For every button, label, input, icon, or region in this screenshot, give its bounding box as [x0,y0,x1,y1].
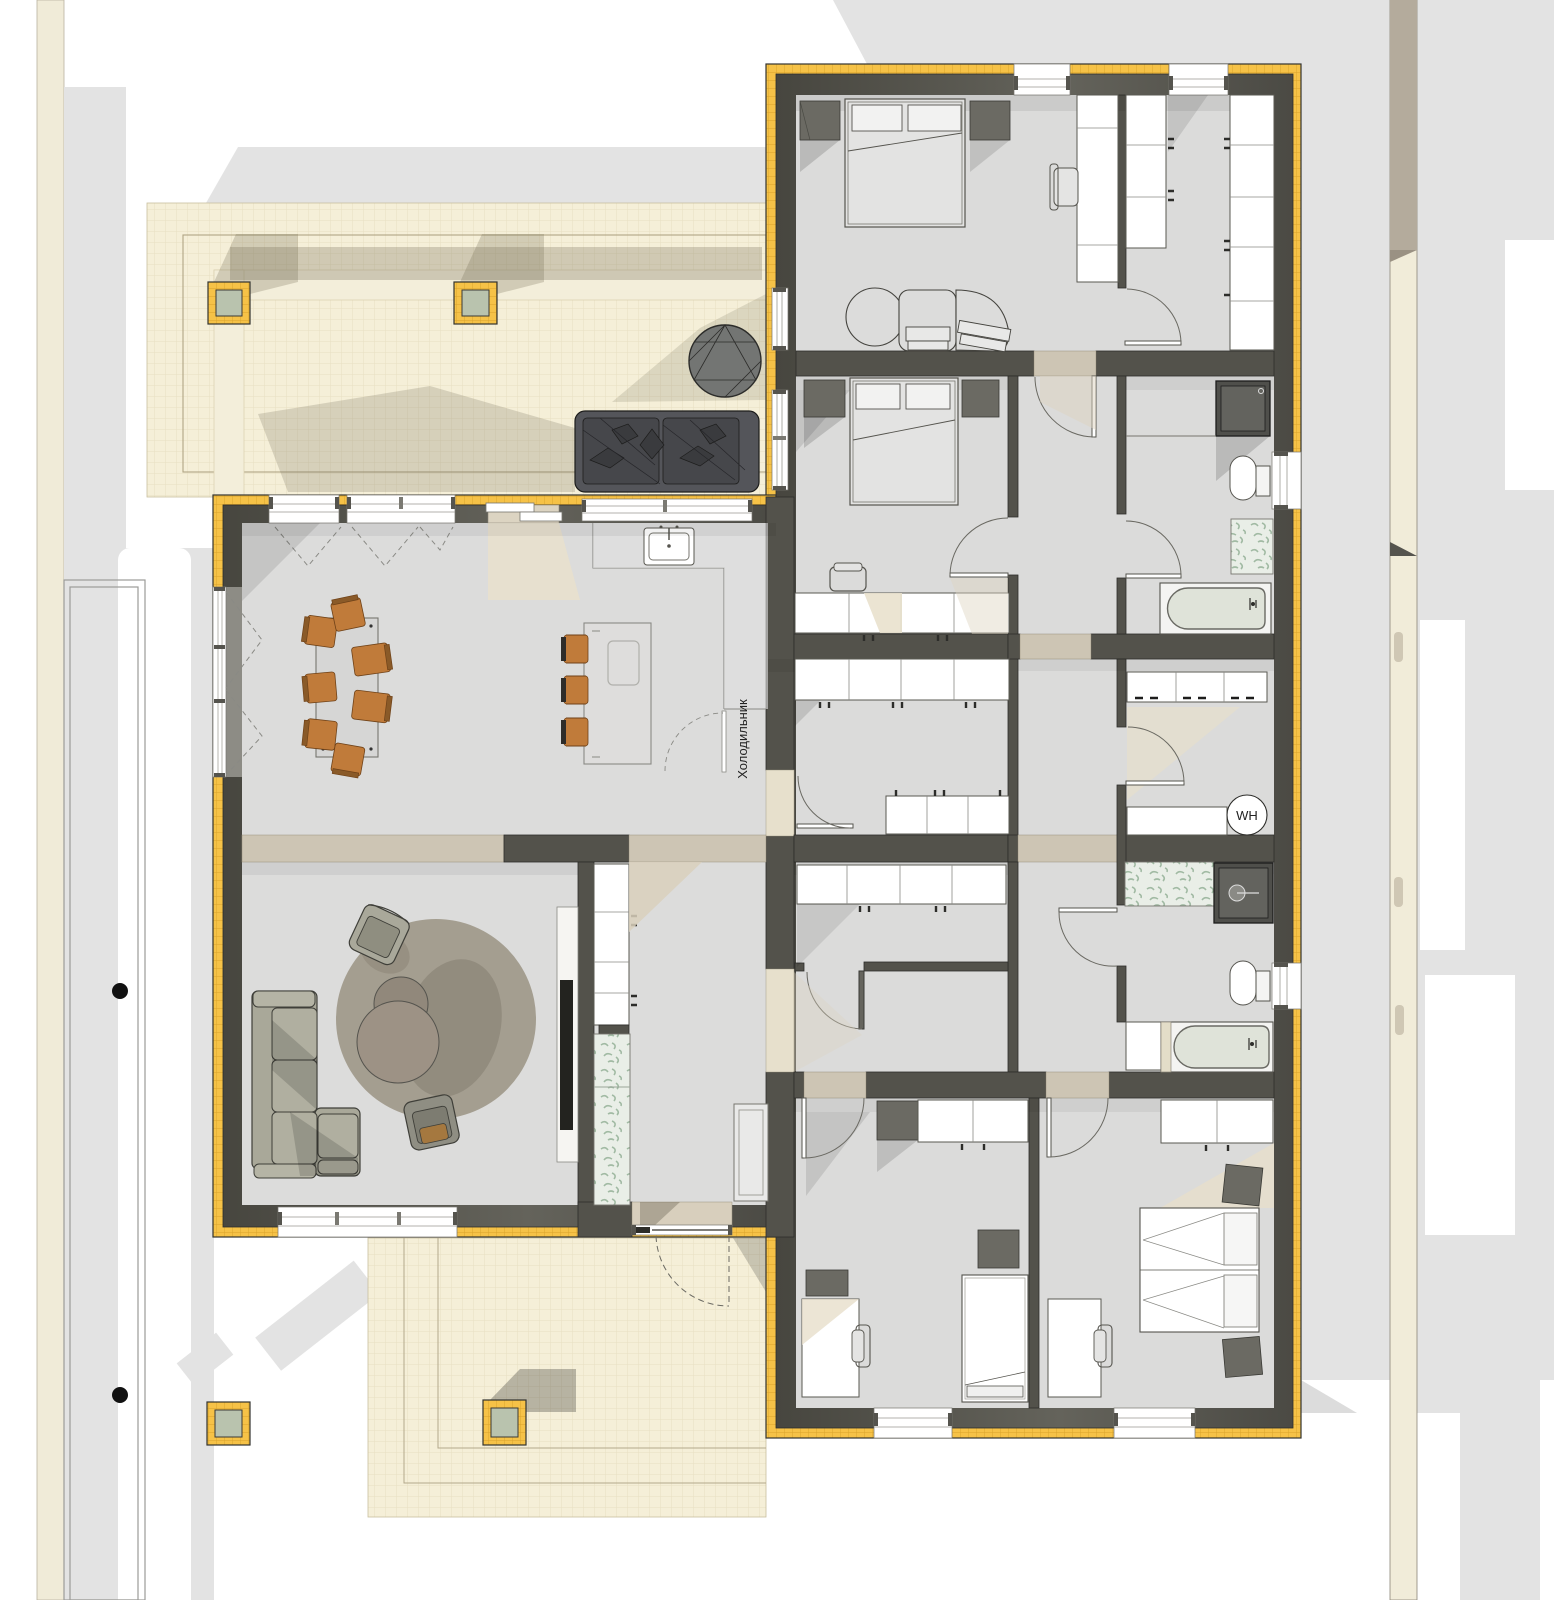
svg-text:WH: WH [1236,808,1258,823]
svg-text:Холодильник: Холодильник [735,699,750,779]
